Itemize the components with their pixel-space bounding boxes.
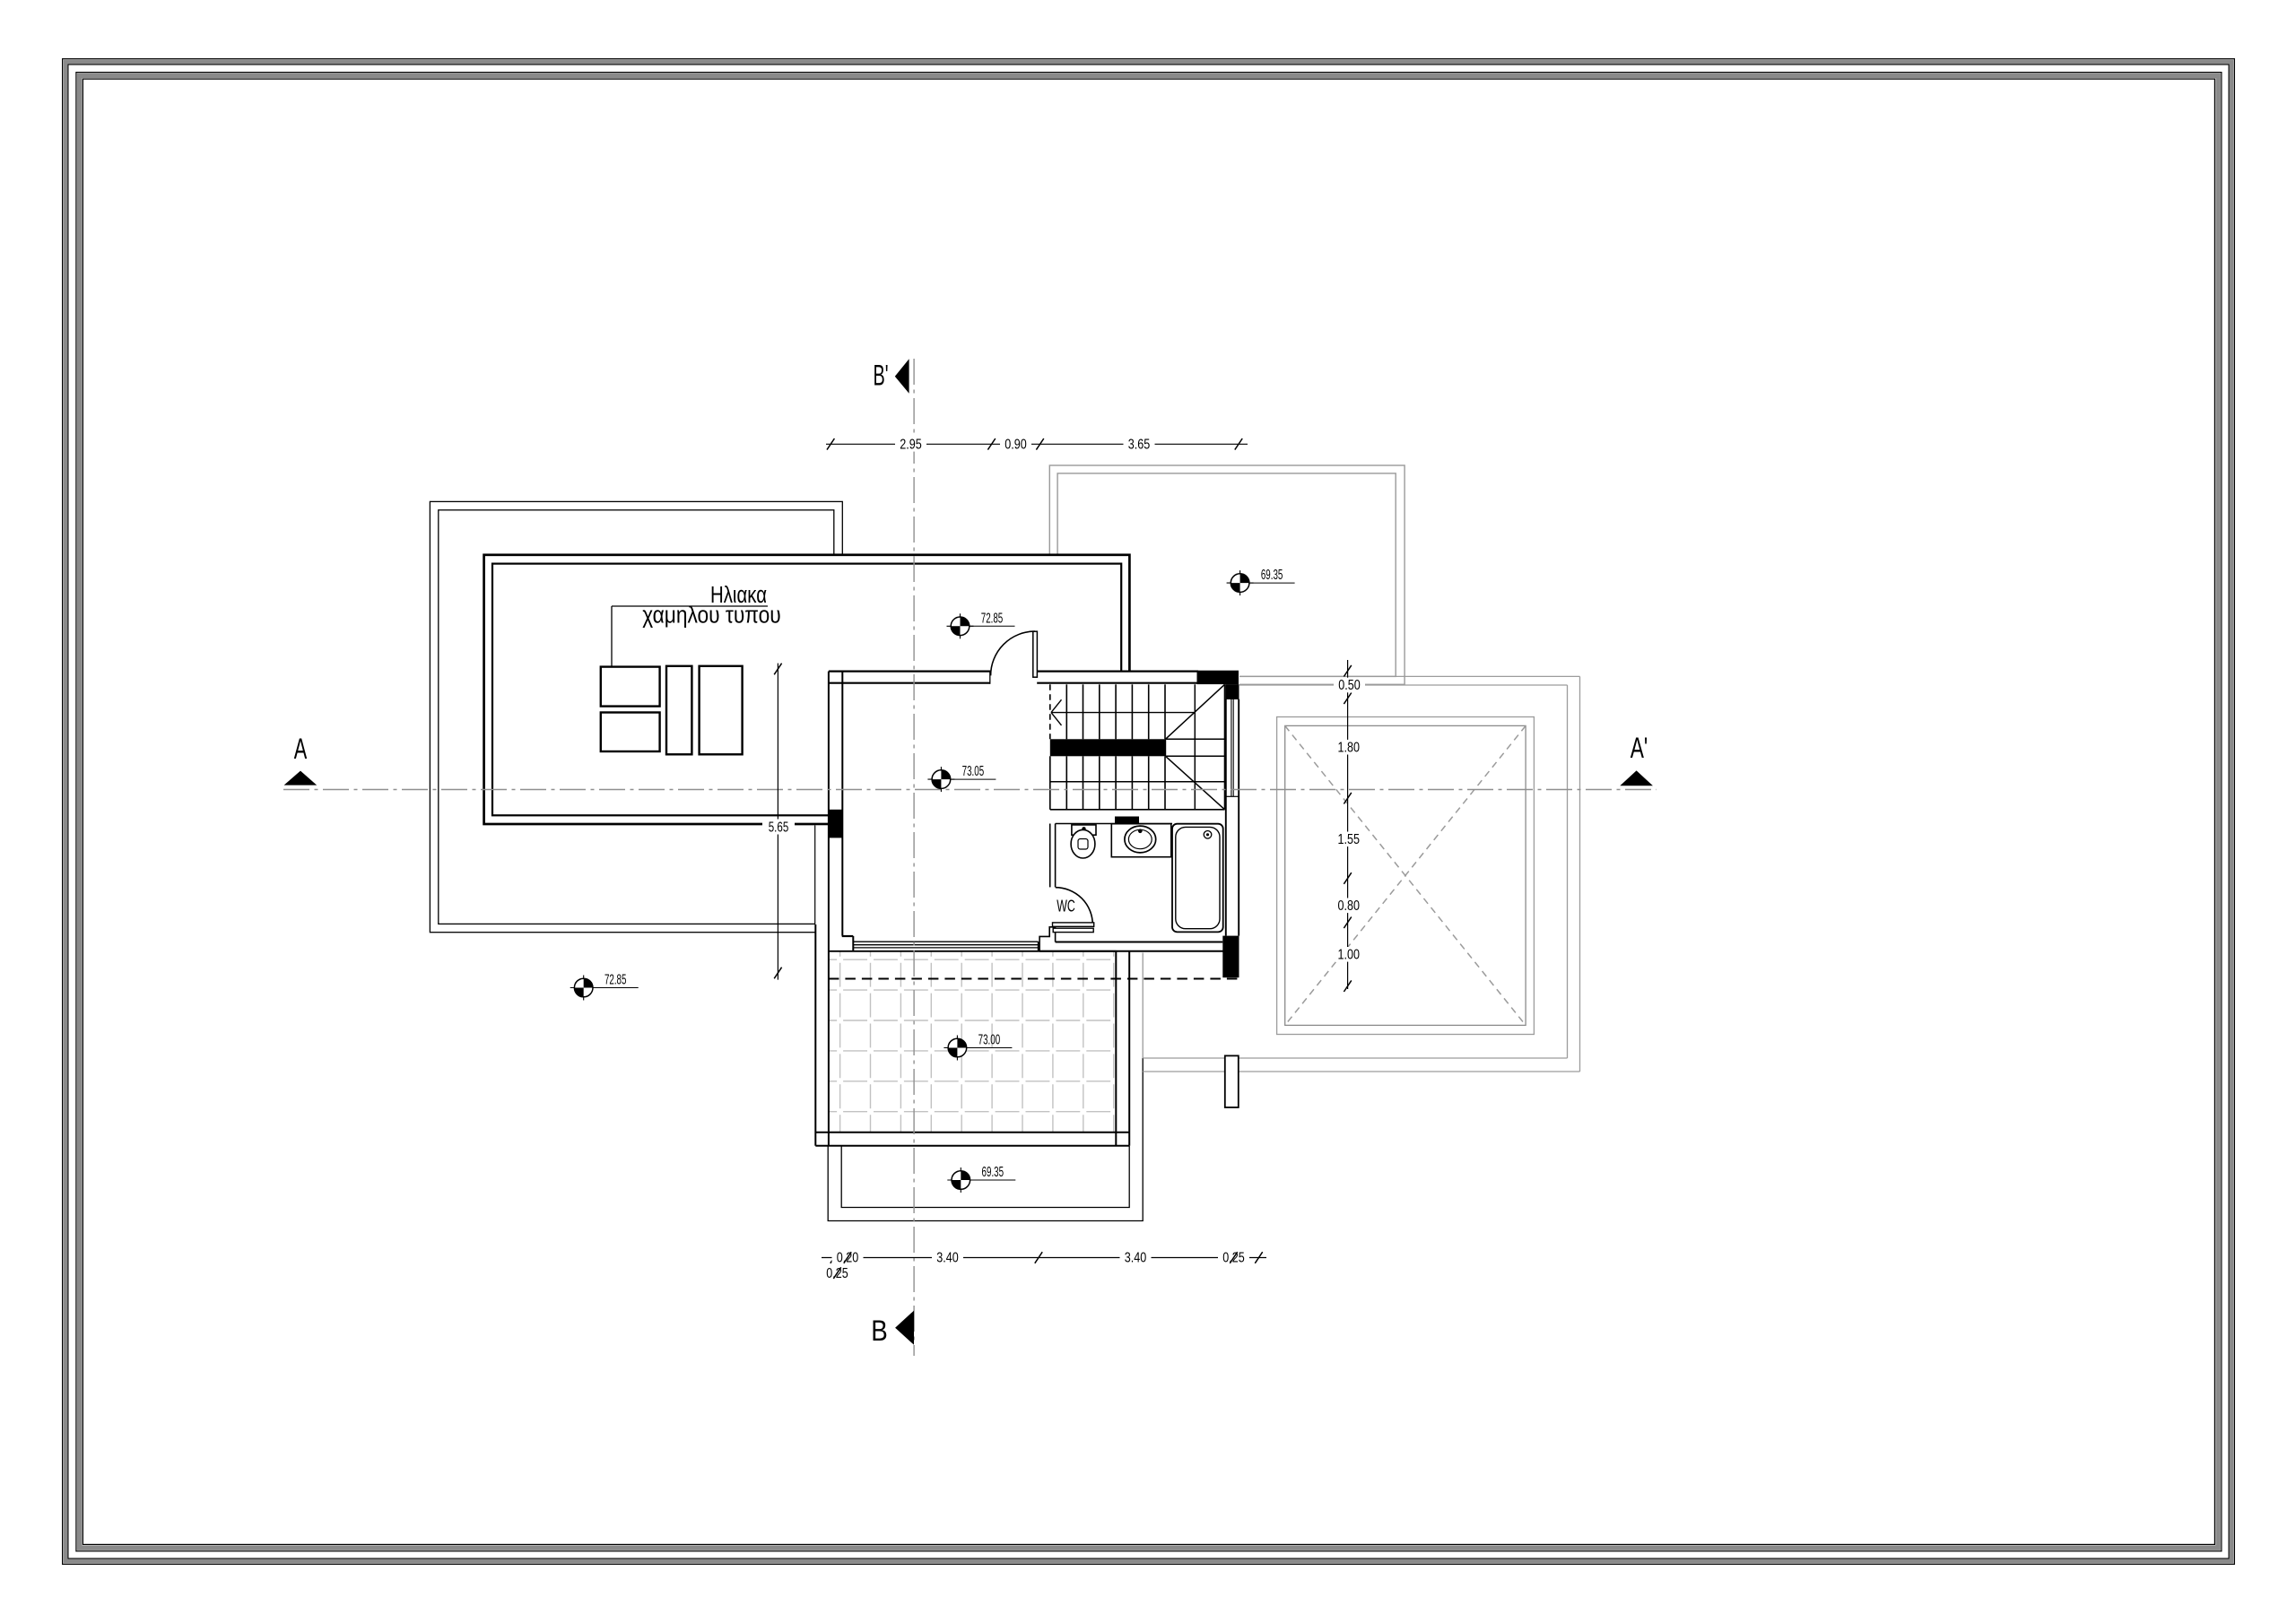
svg-text:72.85: 72.85 xyxy=(981,611,1004,626)
svg-text:3.40: 3.40 xyxy=(936,1251,959,1266)
svg-text:B: B xyxy=(871,1315,888,1347)
svg-text:2.95: 2.95 xyxy=(900,438,922,453)
svg-text:A': A' xyxy=(1631,732,1648,764)
svg-text:B': B' xyxy=(874,359,889,391)
svg-text:72.85: 72.85 xyxy=(604,973,627,988)
svg-text:5.65: 5.65 xyxy=(769,820,789,835)
svg-text:A: A xyxy=(294,733,308,765)
svg-text:χαμηλου τυπου: χαμηλου τυπου xyxy=(642,603,781,629)
svg-text:73.00: 73.00 xyxy=(978,1033,1001,1048)
svg-text:3.40: 3.40 xyxy=(1125,1251,1147,1266)
svg-text:0.90: 0.90 xyxy=(1004,438,1027,453)
svg-text:69.35: 69.35 xyxy=(982,1165,1004,1180)
svg-text:0.50: 0.50 xyxy=(1338,678,1361,693)
svg-text:0.80: 0.80 xyxy=(1338,898,1361,914)
svg-text:1.80: 1.80 xyxy=(1338,740,1361,755)
svg-text:73.05: 73.05 xyxy=(962,764,985,779)
svg-text:69.35: 69.35 xyxy=(1261,568,1283,583)
svg-text:3.65: 3.65 xyxy=(1128,438,1151,453)
svg-text:1.00: 1.00 xyxy=(1338,948,1361,963)
svg-text:WC: WC xyxy=(1057,898,1075,916)
svg-text:1.55: 1.55 xyxy=(1338,832,1361,847)
